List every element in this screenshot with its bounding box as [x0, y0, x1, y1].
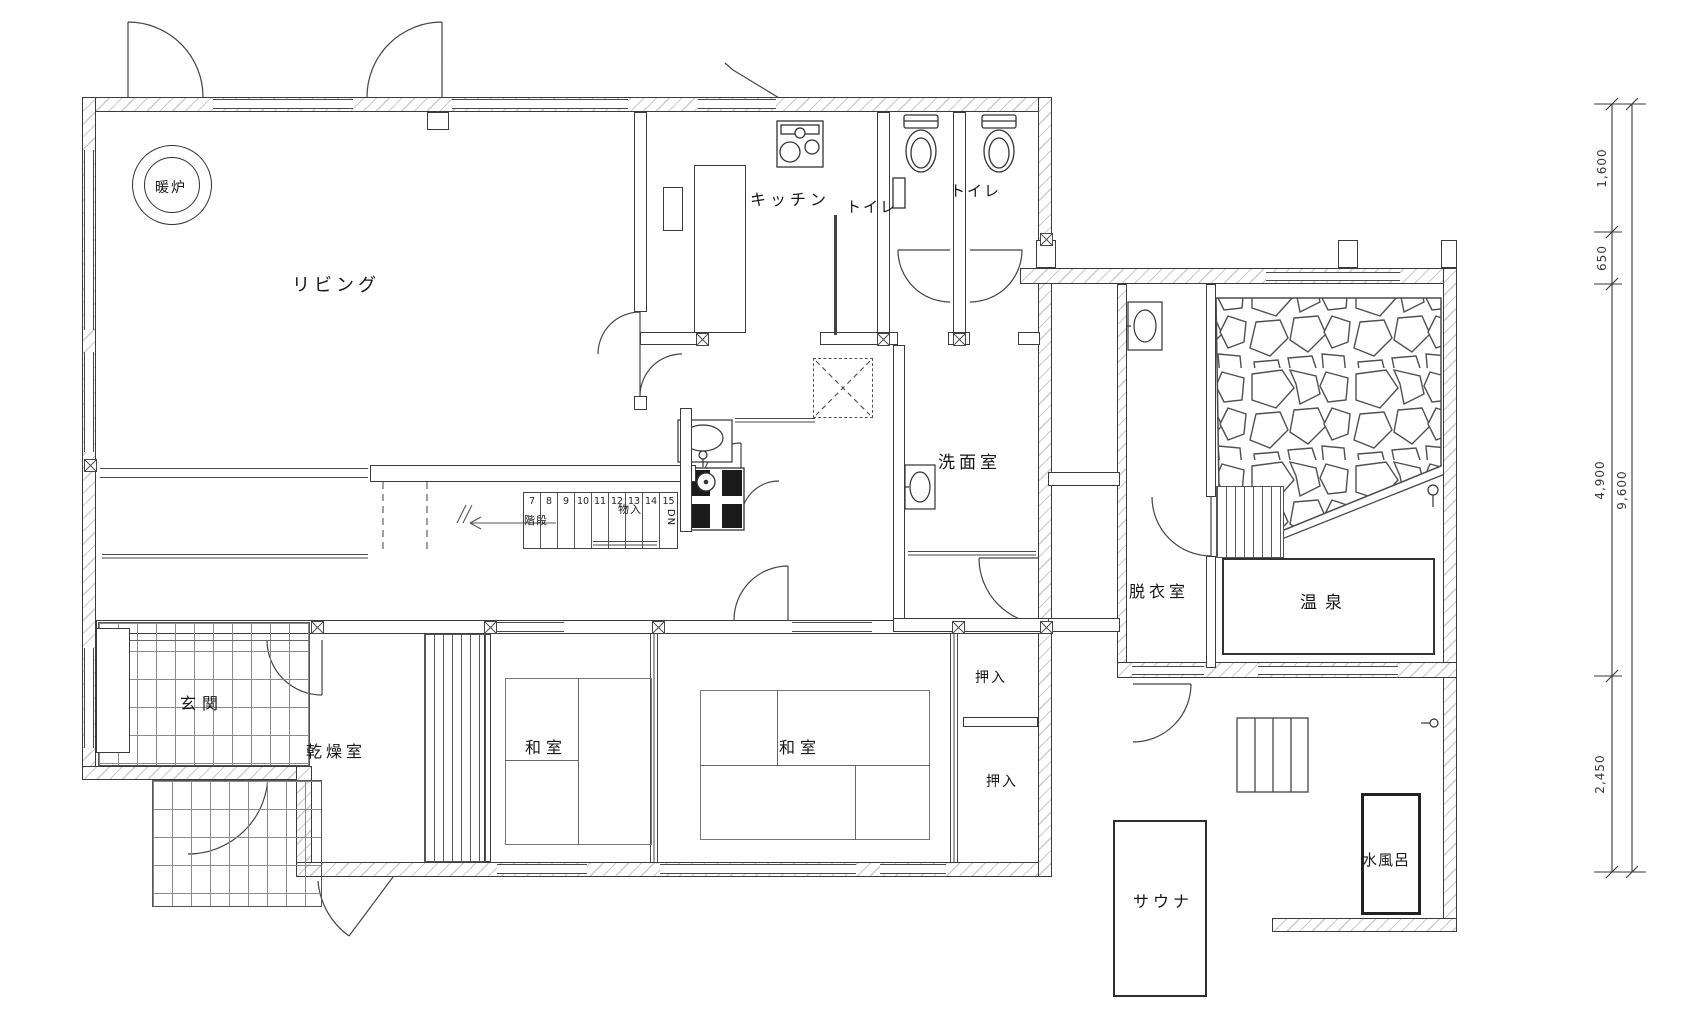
room-label-kitchen: キッチン [750, 186, 830, 210]
room-label-dressing: 脱衣室 [1129, 578, 1189, 602]
wall [1018, 332, 1040, 345]
window [488, 622, 564, 632]
wall [1048, 472, 1120, 486]
room-label-sauna: サウナ [1133, 888, 1193, 912]
window [213, 99, 353, 109]
sliding-door [908, 551, 1036, 558]
stair-number: 9 [558, 493, 575, 548]
wall [893, 345, 905, 632]
log-joint [652, 621, 665, 634]
onsen-duckboard [1216, 486, 1284, 558]
log-post [1338, 240, 1358, 268]
dim-1600: 1,600 [1595, 144, 1609, 192]
sliding-door [735, 418, 815, 425]
window [497, 864, 587, 874]
deck-steps [1237, 718, 1308, 792]
sliding-door [950, 634, 959, 862]
laundry-pan-icon [688, 468, 744, 530]
room-label-living: リビング [292, 271, 380, 297]
wall [877, 112, 890, 345]
wall [953, 112, 966, 338]
window [84, 150, 94, 330]
ceiling-post [427, 112, 449, 130]
window [84, 352, 94, 452]
log-joint [1040, 233, 1053, 246]
window [792, 622, 872, 632]
wall [634, 112, 647, 312]
wall [640, 332, 700, 345]
tatami-line [578, 678, 579, 845]
window [100, 468, 368, 478]
down-mark: DN [665, 509, 676, 526]
kitchen-counter [694, 165, 746, 333]
tatami-line [700, 765, 930, 766]
wall [893, 618, 1053, 632]
log-joint [877, 333, 890, 346]
wall [370, 465, 696, 482]
room-label-stairs: 階段 [524, 512, 548, 528]
room-label-closet-lower: 押入 [986, 771, 1018, 791]
skylight-opening [813, 358, 873, 418]
dim-4900: 4,900 [1593, 456, 1607, 504]
stair-number: 10 [575, 493, 592, 548]
window [1132, 666, 1204, 675]
log-joint [953, 333, 966, 346]
window [880, 864, 946, 874]
room-label-storage: 物入 [618, 501, 642, 517]
wall [1443, 268, 1457, 932]
floor-plan: 7 8 9 10 11 12 13 14 15 リビング 暖炉 キッチン トイレ… [0, 0, 1681, 1013]
room-label-toilet-2: トイレ [950, 180, 1001, 201]
room-label-fireplace: 暖炉 [155, 177, 187, 197]
room-label-closet-upper: 押入 [975, 667, 1007, 687]
wall [1206, 284, 1216, 497]
wall [963, 717, 1038, 727]
stair-number: 14 [643, 493, 660, 548]
wall [1038, 97, 1052, 877]
dim-2450: 2,450 [1593, 750, 1607, 798]
log-joint [484, 621, 497, 634]
log-post [1441, 240, 1457, 268]
room-label-toilet-1: トイレ [846, 196, 897, 217]
wall [1048, 618, 1120, 632]
stair-number: 11 [592, 493, 609, 548]
kitchen-cabinet [663, 187, 683, 231]
tatami-line [777, 690, 778, 765]
log-joint [84, 459, 97, 472]
wall [1272, 918, 1457, 932]
shoe-cabinet [96, 628, 130, 753]
room-label-onsen: 温泉 [1300, 588, 1350, 613]
wall [1206, 556, 1216, 668]
room-label-washroom: 洗面室 [938, 448, 1001, 473]
wall [680, 408, 692, 532]
log-joint [952, 621, 965, 634]
porch-tile [152, 780, 322, 907]
tatami-line [855, 765, 856, 840]
window [1266, 272, 1400, 281]
log-joint [696, 333, 709, 346]
kitchen-island-edge [834, 215, 837, 335]
dim-9600: 9,600 [1615, 466, 1629, 514]
window [660, 864, 856, 874]
window [1258, 666, 1398, 675]
room-label-drying: 乾燥室 [306, 738, 366, 762]
window [452, 99, 628, 109]
sliding-door [102, 554, 368, 561]
tatami-line [505, 760, 578, 761]
room-label-cold-bath: 水風呂 [1362, 849, 1410, 870]
log-joint [1040, 621, 1053, 634]
window [698, 99, 776, 109]
dim-650: 650 [1595, 234, 1609, 282]
drying-room-slats [424, 634, 486, 862]
room-label-entrance: 玄関 [180, 690, 224, 714]
wall [634, 396, 647, 410]
stove-icon [777, 121, 823, 167]
log-joint [311, 621, 324, 634]
window [84, 648, 94, 748]
wall [82, 766, 312, 780]
